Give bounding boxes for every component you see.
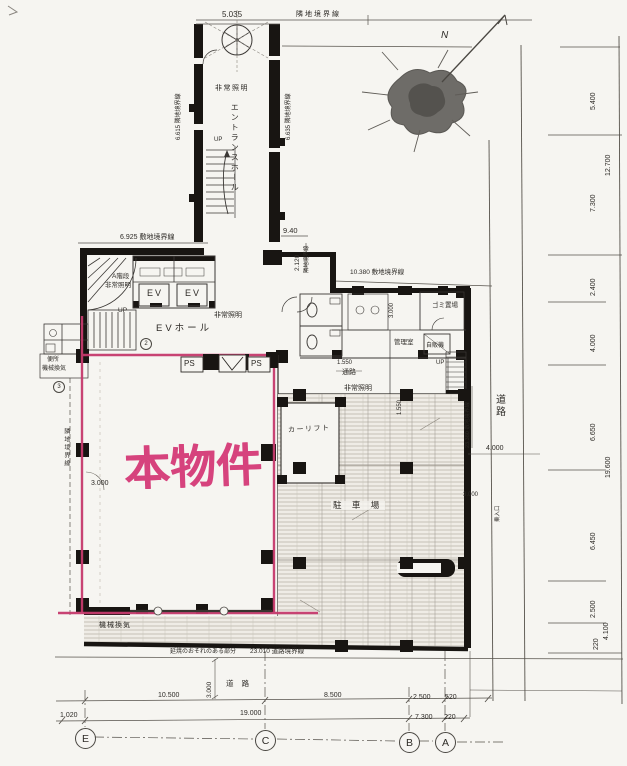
dim-col-220: 220 [593,638,600,650]
dim-col-4100: 4.100 [603,622,610,640]
boundary-left-lower: 隣地境界線 [62,428,69,468]
up-right-stair: UP [436,360,444,366]
dim-top: 5.035 [222,11,242,19]
circled-note-2: 2 [140,338,152,350]
boundary-top-label: 隣地境界線 [296,11,341,18]
dim-col-6450: 6.450 [590,532,597,550]
dim-col-6650: 6.650 [590,423,597,441]
ev-hall-label: EVホール [156,324,212,334]
dim-row1-10500: 10.500 [158,692,179,699]
ps2-label: PS [251,360,262,368]
dim-row2-220: 220 [444,714,456,721]
boundary-left-upper: 6.615 隣地境界線 [176,93,182,140]
north-label: N [441,31,448,41]
emergency-light-parking: 非常照明 [344,385,372,392]
grid-bubble-c: C [255,730,276,751]
ps1-label: PS [184,360,195,368]
mech-vent-label: 機械換気 [99,622,131,629]
dim-col-4000: 4.000 [590,334,597,352]
boundary-east-small: 隣地境界線 [305,245,311,273]
dim-2120: 2.120 [295,255,302,271]
dim-col-2500: 2.500 [590,600,597,618]
parking-label: 駐 車 場 [331,501,385,510]
floorplan-page: 5.035 隣地境界線 非常照明 エントランスホール UP 9.40 6.925… [0,0,627,766]
toilet-vent-label: 機械換気 [42,366,66,372]
road-boundary-label: 23.010 道路境界線 [250,649,304,656]
emergency-light-stair: 非常照明 [105,283,131,290]
grid-bubble-b: B [399,732,420,753]
grid-bubble-a: A [435,732,456,753]
dim-3000-left: 3.000 [91,480,109,487]
boundary-right-upper: 6.635 隣地境界線 [286,93,292,140]
emergency-light-entrance: 非常照明 [215,85,249,92]
ev1-label: EV [147,289,163,298]
boundary-right-site: 23.380 敷地境界線 [466,402,472,448]
property-highlight-label: 本物件 [123,442,263,493]
dim-row2-1020: 1.020 [60,712,78,719]
dim-row1-8500: 8.500 [324,692,342,699]
dim-col-2400: 2.400 [590,278,597,296]
floorplan-drawing [0,0,627,766]
dim-row2-19000: 19.000 [240,710,261,717]
dim-col-5400: 5.400 [590,92,597,110]
vending-label: 自販機 [426,343,444,349]
dim-3000-right: 3.000 [463,492,478,498]
grid-bubble-e: E [75,728,96,749]
stair-a-label: A階段 [112,274,129,281]
scan-mark [8,6,17,15]
dim-4000-right: 4.000 [486,445,504,452]
dim-row2-7300: 7.300 [415,714,433,721]
dim-1550-h: 1.550 [337,360,352,366]
boundary-site-mid: 10.380 敷地境界線 [350,270,404,277]
dim-row1-2500: 2.500 [413,694,431,701]
dim-3000-bottom: 3.000 [207,682,214,698]
entrance-hall-label: エントランスホール [230,103,239,193]
up-entrance: UP [214,137,222,143]
dim-col-19600: 19.600 [605,457,612,478]
toilet-label: 便所 [47,357,59,363]
dim-row1-520: 520 [445,694,457,701]
emergency-light-evhall: 非常照明 [214,312,242,319]
corridor-label: 通路 [342,369,356,376]
dim-col-12700: 12.700 [605,155,612,176]
boundary-site-top: 6.925 敷地境界線 [120,234,174,241]
dim-col-7300: 7.300 [590,194,597,212]
circled-note-3: 3 [53,381,65,393]
up-stair-a: UP [118,308,127,315]
dim-940: 9.40 [283,227,298,235]
road-bottom-label: 道 路 [226,680,252,688]
manager-room-label: 管理室 [394,340,414,347]
fire-spread-note: 延焼のおそれのある部分 [170,649,236,655]
ev2-label: EV [185,289,201,298]
road-right-label: 道路 [493,394,505,418]
garbage-room-label: ゴミ置場 [432,303,458,310]
entry-note-label: 乗入口 [496,505,502,522]
dim-3000-mid: 3.000 [389,303,395,318]
dim-1550-v: 1.550 [397,400,403,415]
north-arrow-stamp [362,15,507,152]
